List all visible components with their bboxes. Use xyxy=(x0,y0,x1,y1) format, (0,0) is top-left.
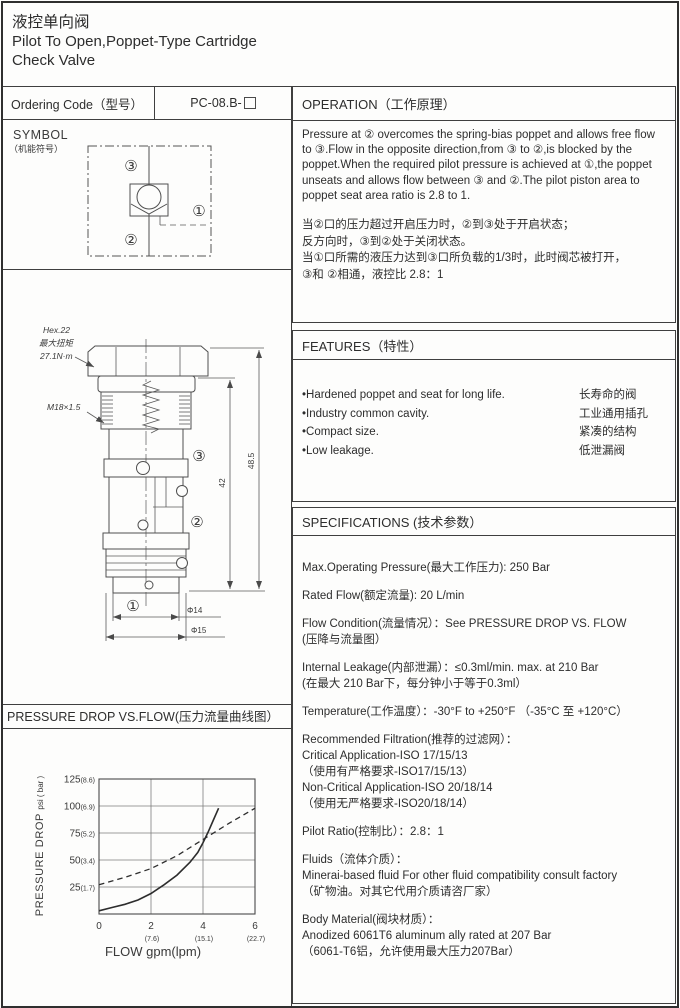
feature-row: •Compact size. 紧凑的结构 xyxy=(302,423,667,442)
ordering-code-row: Ordering Code（型号） PC-08.B- xyxy=(3,87,291,120)
o-ring-upper xyxy=(177,486,188,497)
operation-cn-line: ③和 ②相通，液控比 2.8：1 xyxy=(302,267,667,284)
dim-text-42: 42 xyxy=(217,478,227,488)
chart-y-axis-label: PRESSURE DROP psi ( bar ) xyxy=(34,775,46,916)
svg-text:125(8.6): 125(8.6) xyxy=(64,775,95,786)
drawing-port-2: ② xyxy=(190,514,203,531)
spec-line: Non-Critical Application-ISO 20/18/14 xyxy=(302,780,665,796)
operation-text-english: Pressure at ② overcomes the spring-bias … xyxy=(302,128,667,204)
feature-text-chinese: 工业通用插孔 xyxy=(579,405,667,424)
spec-line: (压降与流量图） xyxy=(302,632,665,648)
feature-row: •Industry common cavity. 工业通用插孔 xyxy=(302,405,667,424)
hex-size-label: Hex.22 xyxy=(43,325,70,335)
spec-item-rated-flow: Rated Flow(额定流量): 20 L/min xyxy=(302,588,665,604)
drawing-section: Hex.22 最大扭矩 27.1N·m M18×1.5 ③ ② ① 48.5 4… xyxy=(3,269,291,704)
feature-row: •Low leakage. 低泄漏阀 xyxy=(302,442,667,461)
page-title-english-line2: Check Valve xyxy=(12,51,257,70)
operation-box: OPERATION（工作原理） Pressure at ② overcomes … xyxy=(292,86,676,323)
spec-line: Minerai-based fluid For other fluid comp… xyxy=(302,868,665,884)
svg-text:100(6.9): 100(6.9) xyxy=(64,802,95,813)
o-ring-lower xyxy=(177,558,188,569)
operation-cn-line: 当①口所需的液压力达到③口所负载的1/3时，此时阀芯被打开， xyxy=(302,250,667,267)
spec-item-body-material: Body Material(阀块材质）： Anodized 6061T6 alu… xyxy=(302,912,665,960)
drawing-port-1: ① xyxy=(126,598,139,615)
specifications-body: Max.Operating Pressure(最大工作压力): 250 Bar … xyxy=(293,536,675,960)
spec-line: （使用有严格要求-ISO17/15/13） xyxy=(302,764,665,780)
dim-text-485: 48.5 xyxy=(246,452,256,469)
ordering-code-text: PC-08.B- xyxy=(190,96,241,110)
operation-text-chinese: 当②口的压力超过开启压力时，②到③处于开启状态； 反方向时，③到②处于关闭状态。… xyxy=(302,217,667,283)
operation-header: OPERATION（工作原理） xyxy=(293,87,675,121)
spec-item-max-pressure: Max.Operating Pressure(最大工作压力): 250 Bar xyxy=(302,560,665,576)
svg-text:4: 4 xyxy=(200,921,206,932)
nose-ball xyxy=(145,581,153,589)
pilot-piston-ball xyxy=(138,520,148,530)
spec-line: (在最大 210 Bar下，每分钟小于等于0.3ml） xyxy=(302,676,665,692)
max-torque-label-cn: 最大扭矩 xyxy=(39,338,75,348)
pressure-drop-chart-section: 25(1.7)50(3.4)75(5.2)100(6.9)125(8.6)02(… xyxy=(3,730,291,1006)
datasheet-page: 液控单向阀 Pilot To Open,Poppet-Type Cartridg… xyxy=(0,0,680,1008)
hydraulic-symbol-diagram: SYMBOL （机能符号） ③ ② ① xyxy=(3,119,291,269)
features-box: FEATURES（特性） •Hardened poppet and seat f… xyxy=(292,330,676,502)
left-column: Ordering Code（型号） PC-08.B- SYMBOL （机能符号）… xyxy=(3,86,292,1006)
curve-pilot-open-3-to-2 xyxy=(99,808,255,885)
symbol-title: SYMBOL xyxy=(13,128,68,142)
spec-item-fluids: Fluids（流体介质）： Minerai-based fluid For ot… xyxy=(302,852,665,900)
symbol-port-2: ② xyxy=(124,232,137,249)
svg-text:(7.6): (7.6) xyxy=(145,936,159,943)
hex-head xyxy=(88,346,208,376)
spec-item-pilot-ratio: Pilot Ratio(控制比）：2.8：1 xyxy=(302,824,665,840)
feature-text-chinese: 紧凑的结构 xyxy=(579,423,667,442)
ordering-code-option-box xyxy=(244,97,256,109)
spec-item-temperature: Temperature(工作温度）：-30°F to +250°F （-35°C… xyxy=(302,704,665,720)
hex-leader-line xyxy=(75,357,94,367)
features-header: FEATURES（特性） xyxy=(293,331,675,360)
feature-text-english: •Industry common cavity. xyxy=(302,405,579,424)
feature-text-chinese: 低泄漏阀 xyxy=(579,442,667,461)
feature-text-english: •Hardened poppet and seat for long life. xyxy=(302,386,579,405)
operation-body: Pressure at ② overcomes the spring-bias … xyxy=(293,121,675,283)
thread-size-label: M18×1.5 xyxy=(47,402,81,412)
operation-cn-line: 当②口的压力超过开启压力时，②到③处于开启状态； xyxy=(302,217,667,234)
spec-item-filtration: Recommended Filtration(推荐的过滤网）： Critical… xyxy=(302,732,665,812)
spec-line: Flow Condition(流量情况）：See PRESSURE DROP V… xyxy=(302,616,665,632)
pressure-drop-chart: 25(1.7)50(3.4)75(5.2)100(6.9)125(8.6)02(… xyxy=(3,730,291,1006)
specifications-box: SPECIFICATIONS (技术参数） Max.Operating Pres… xyxy=(292,507,676,1004)
spec-item-internal-leakage: Internal Leakage(内部泄漏）：≤0.3ml/min. max. … xyxy=(302,660,665,692)
spec-line: Recommended Filtration(推荐的过滤网）： xyxy=(302,732,665,748)
spec-line: Pilot Ratio(控制比）：2.8：1 xyxy=(302,824,665,840)
dim-text-d15: Φ15 xyxy=(191,626,207,635)
symbol-section: SYMBOL （机能符号） ③ ② ① xyxy=(3,119,291,270)
svg-text:(15.1): (15.1) xyxy=(195,936,213,943)
spec-line: Internal Leakage(内部泄漏）：≤0.3ml/min. max. … xyxy=(302,660,665,676)
curve-free-flow-2-to-3 xyxy=(99,808,219,911)
poppet-ball xyxy=(137,462,150,475)
spec-line: （6061-T6铝，允许使用最大压力207Bar） xyxy=(302,944,665,960)
spec-line: Body Material(阀块材质）： xyxy=(302,912,665,928)
svg-text:2: 2 xyxy=(148,921,154,932)
internal-spring xyxy=(143,381,159,433)
feature-row: •Hardened poppet and seat for long life.… xyxy=(302,386,667,405)
svg-text:50(3.4): 50(3.4) xyxy=(69,856,95,867)
svg-text:25(1.7): 25(1.7) xyxy=(69,883,95,894)
title-block: 液控单向阀 Pilot To Open,Poppet-Type Cartridg… xyxy=(12,13,257,70)
features-body: •Hardened poppet and seat for long life.… xyxy=(293,360,675,460)
check-valve-poppet-ball xyxy=(137,185,161,209)
svg-text:6: 6 xyxy=(252,921,258,932)
spec-line: Anodized 6061T6 aluminum ally rated at 2… xyxy=(302,928,665,944)
spec-item-flow-condition: Flow Condition(流量情况）：See PRESSURE DROP V… xyxy=(302,616,665,648)
symbol-port-1: ① xyxy=(192,203,205,220)
collar xyxy=(98,376,195,392)
svg-text:(22.7): (22.7) xyxy=(247,936,265,943)
operation-cn-line: 反方向时，③到②处于关闭状态。 xyxy=(302,234,667,251)
spec-line: Temperature(工作温度）：-30°F to +250°F （-35°C… xyxy=(302,704,665,720)
page-title-chinese: 液控单向阀 xyxy=(12,13,257,32)
ordering-code-value: PC-08.B- xyxy=(155,87,291,119)
valve-cross-section-drawing: Hex.22 最大扭矩 27.1N·m M18×1.5 ③ ② ① 48.5 4… xyxy=(3,269,291,704)
spec-line: （使用无严格要求-ISO20/18/14） xyxy=(302,796,665,812)
spec-line: （矿物油。对其它代用介质请咨厂家） xyxy=(302,884,665,900)
feature-text-english: •Low leakage. xyxy=(302,442,579,461)
ordering-code-label: Ordering Code（型号） xyxy=(3,87,155,119)
svg-text:0: 0 xyxy=(96,921,102,932)
symbol-subtitle: （机能符号） xyxy=(9,143,63,154)
chart-x-axis-label: FLOW gpm(lpm) xyxy=(105,944,201,959)
svg-text:75(5.2): 75(5.2) xyxy=(69,829,95,840)
max-torque-value: 27.1N·m xyxy=(39,351,73,361)
spec-line: Rated Flow(额定流量): 20 L/min xyxy=(302,588,665,604)
feature-text-english: •Compact size. xyxy=(302,423,579,442)
symbol-port-3: ③ xyxy=(124,158,137,175)
drawing-port-3: ③ xyxy=(192,448,205,465)
spec-line: Fluids（流体介质）： xyxy=(302,852,665,868)
page-title-english-line1: Pilot To Open,Poppet-Type Cartridge xyxy=(12,32,257,51)
dim-text-d14: Φ14 xyxy=(187,606,203,615)
specifications-header: SPECIFICATIONS (技术参数） xyxy=(293,508,675,536)
spec-line: Critical Application-ISO 17/15/13 xyxy=(302,748,665,764)
spec-line: Max.Operating Pressure(最大工作压力): 250 Bar xyxy=(302,560,665,576)
pressure-drop-section-header: PRESSURE DROP VS.FLOW(压力流量曲线图） xyxy=(3,704,291,729)
feature-text-chinese: 长寿命的阀 xyxy=(579,386,667,405)
